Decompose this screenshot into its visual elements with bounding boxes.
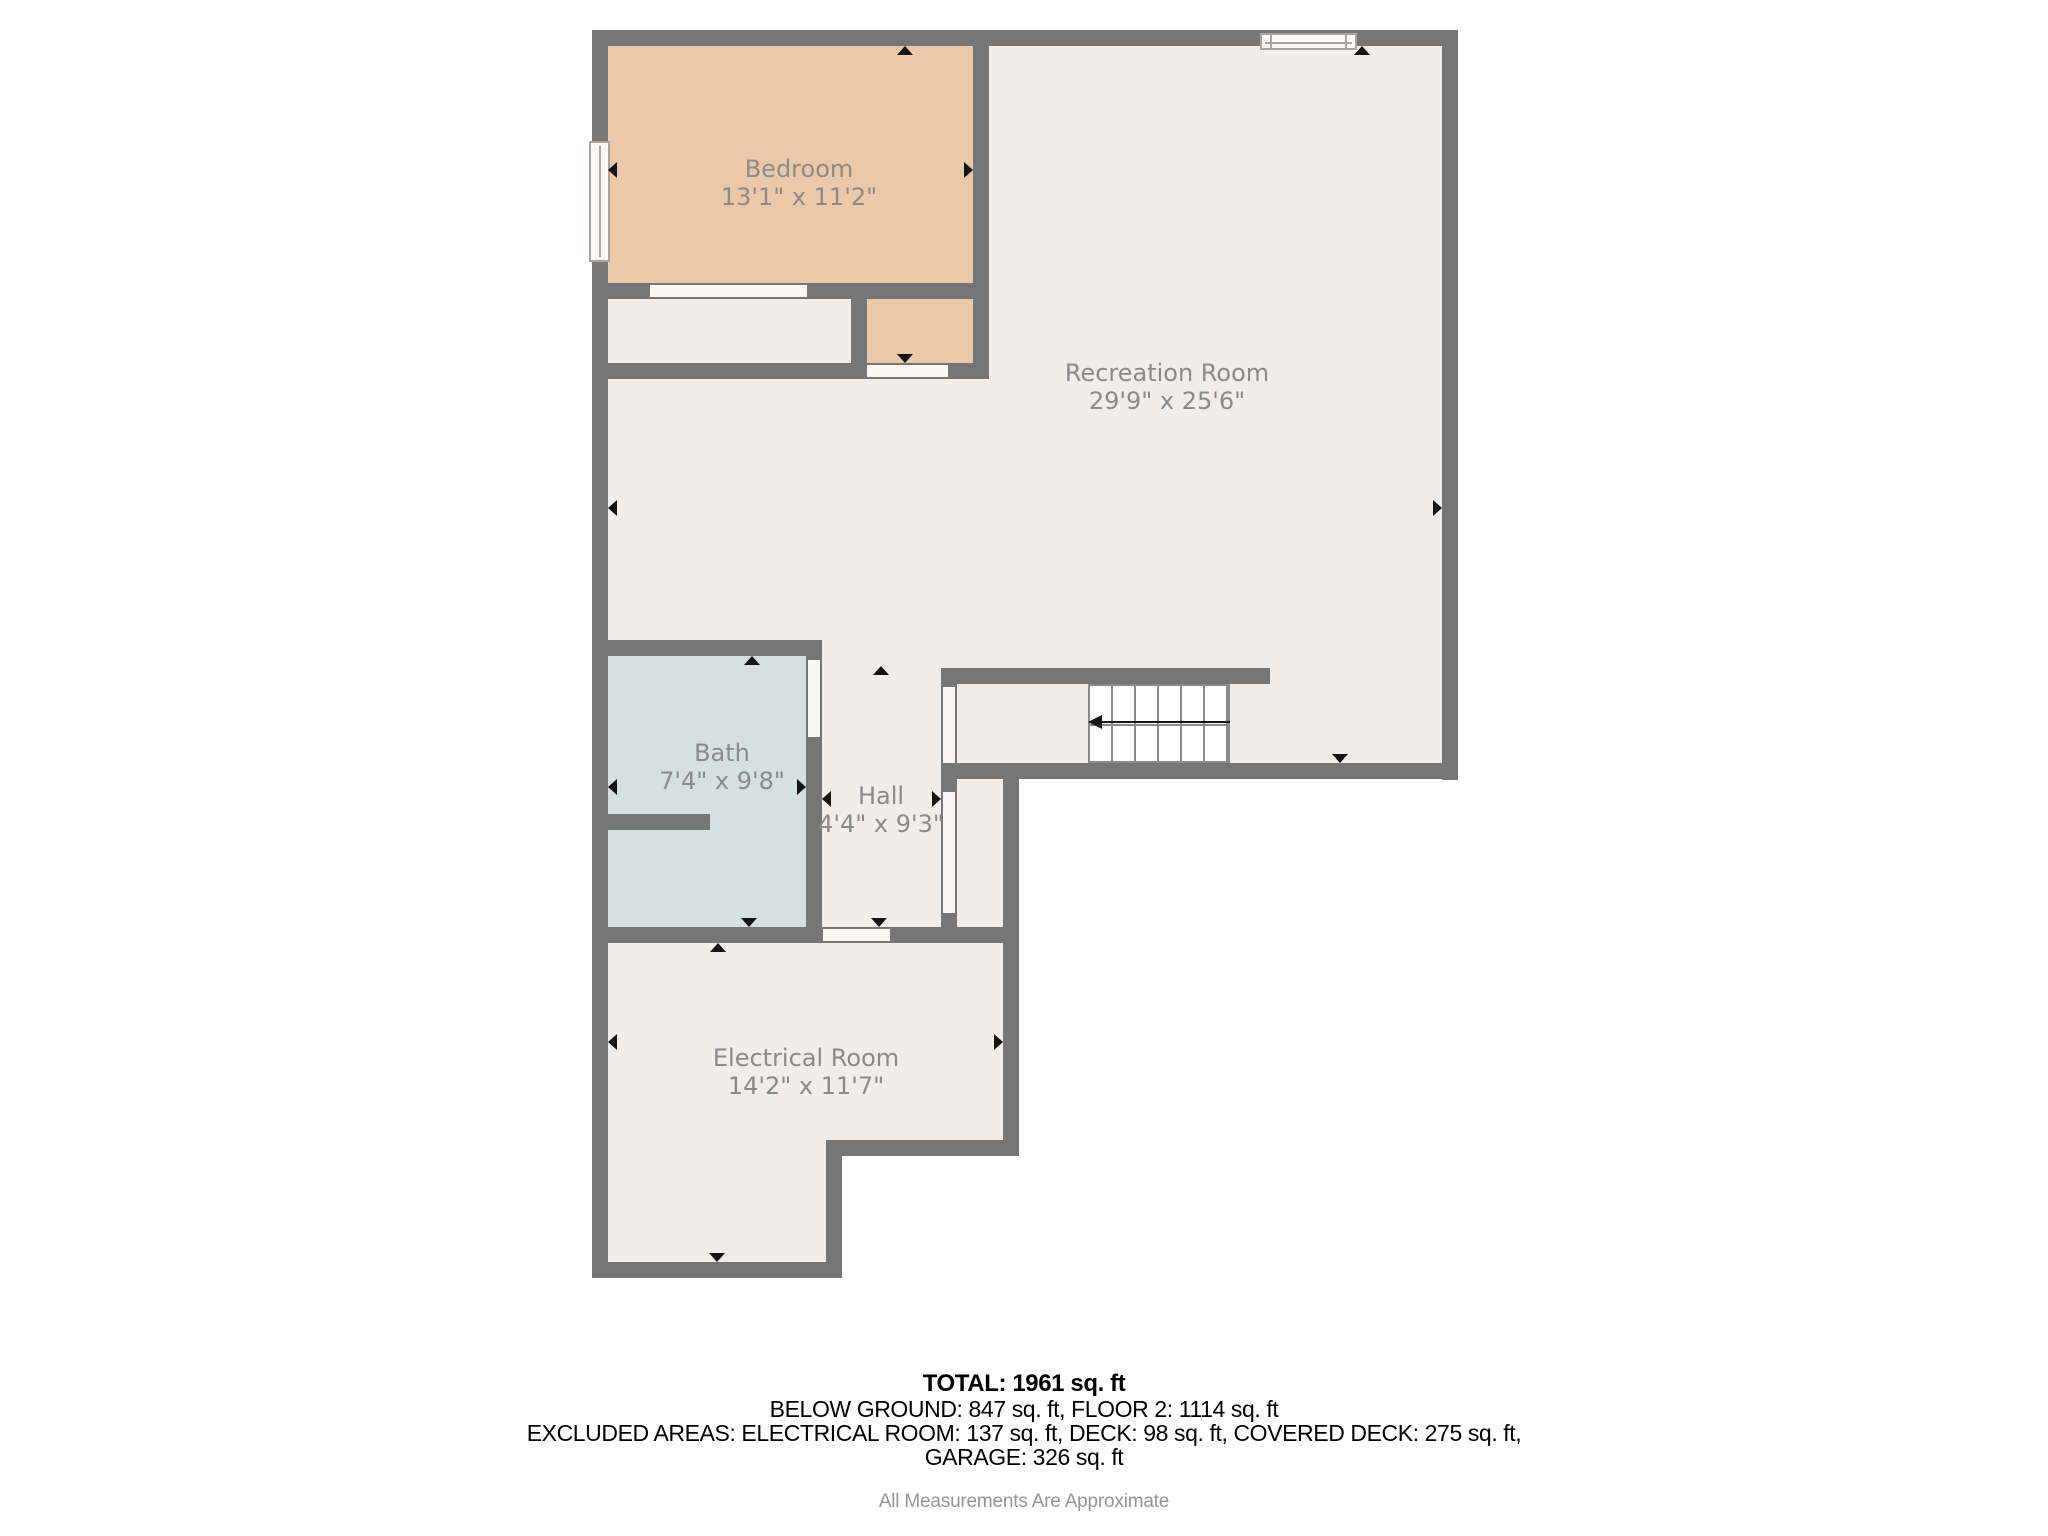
window-frame-line [599,146,601,257]
extent-arrow-down-icon [1332,754,1348,763]
wall-bath-stub [592,814,710,830]
area-summary: TOTAL: 1961 sq. ft BELOW GROUND: 847 sq.… [0,1371,2048,1513]
measurement-disclaimer: All Measurements Are Approximate [0,1491,2048,1513]
stair-mid-line [1090,724,1228,726]
basement-floor-plan: Bedroom 13'1" x 11'2" Recreation Room 29… [0,0,2048,1536]
vestibule-floor [955,763,1003,927]
wall-electrical-bottom [592,1262,842,1278]
extent-arrow-up-icon [710,943,726,952]
room-name: Recreation Room [1065,359,1269,387]
wall-vestibule-right [1003,763,1019,1156]
extent-arrow-right-icon [964,162,973,178]
room-dimensions: 7'4" x 9'8" [659,767,785,795]
electrical-room-floor-lower [608,1140,826,1262]
extent-arrow-up-icon [873,666,889,675]
electrical-room-floor [608,927,1003,1156]
wall-electrical-step [826,1140,1019,1156]
extent-arrow-right-icon [1433,500,1442,516]
excluded-areas-text-2: GARAGE: 326 sq. ft [0,1445,2048,1469]
bedroom-door-opening [867,365,948,377]
room-name: Hall [818,782,944,810]
window-frame-line [1265,42,1352,44]
extent-arrow-left-icon [608,779,617,795]
extent-arrow-left-icon [608,500,617,516]
hall-vestibule-door-opening [943,792,955,913]
recreation-room-floor-left [608,379,973,656]
closet-door-opening [650,285,807,297]
hall-electrical-door-opening [823,929,890,941]
extent-arrow-down-icon [709,1253,725,1262]
extent-arrow-down-icon [897,354,913,363]
room-dimensions: 13'1" x 11'2" [721,183,877,211]
recreation-room-window [1260,33,1357,50]
staircase [1088,684,1230,763]
room-dimensions: 29'9" x 25'6" [1065,387,1269,415]
window-frame-post [1345,35,1347,48]
wall-stairs-top [941,668,1270,684]
stair-direction-line [1100,721,1230,723]
bedroom-window [589,141,610,262]
room-dimensions: 4'4" x 9'3" [818,810,944,838]
room-label-bath: Bath 7'4" x 9'8" [659,739,785,795]
room-name: Bath [659,739,785,767]
extent-arrow-up-icon [897,46,913,55]
extent-arrow-left-icon [608,1034,617,1050]
extent-arrow-down-icon [871,918,887,927]
bath-door-opening [808,660,820,737]
extent-arrow-right-icon [797,779,806,795]
wall-bath-top [592,640,822,656]
total-area-text: TOTAL: 1961 sq. ft [0,1371,2048,1397]
excluded-areas-text: EXCLUDED AREAS: ELECTRICAL ROOM: 137 sq.… [0,1421,2048,1445]
extent-arrow-left-icon [608,162,617,178]
room-label-hall: Hall 4'4" x 9'3" [818,782,944,838]
extent-arrow-down-icon [741,918,757,927]
room-dimensions: 14'2" x 11'7" [713,1072,899,1100]
room-name: Electrical Room [713,1044,899,1072]
window-frame-post [1270,35,1272,48]
hall-landing-door-opening [943,687,955,763]
room-label-recreation-room: Recreation Room 29'9" x 25'6" [1065,359,1269,415]
wall-electrical-right-lower [826,1140,842,1278]
area-breakdown-text: BELOW GROUND: 847 sq. ft, FLOOR 2: 1114 … [0,1397,2048,1421]
extent-arrow-right-icon [994,1034,1003,1050]
stair-direction-arrow-icon [1088,715,1102,729]
room-name: Bedroom [721,155,877,183]
extent-arrow-up-icon [1354,46,1370,55]
room-label-bedroom: Bedroom 13'1" x 11'2" [721,155,877,211]
extent-arrow-up-icon [744,656,760,665]
room-label-electrical-room: Electrical Room 14'2" x 11'7" [713,1044,899,1100]
wall-bedroom-right [973,30,989,379]
wall-right [1442,30,1458,780]
